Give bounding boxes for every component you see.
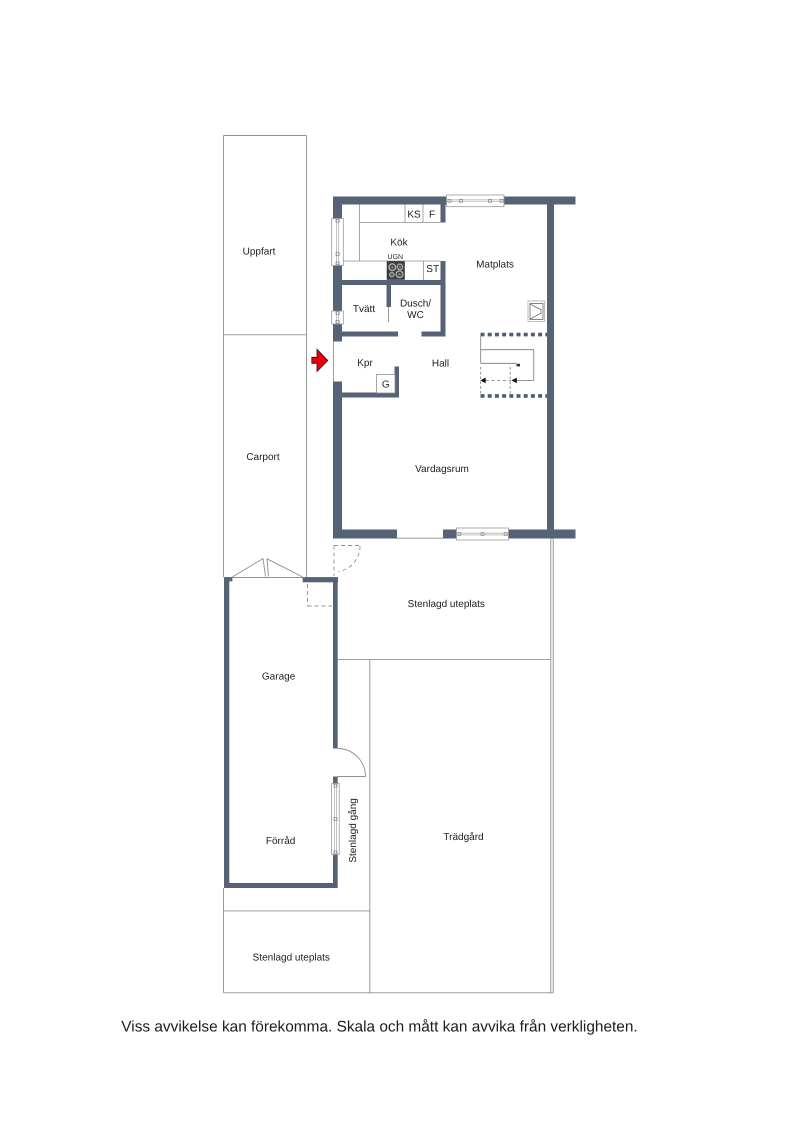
svg-text:Hall: Hall (432, 359, 449, 370)
svg-text:KS: KS (407, 210, 421, 221)
svg-text:Stenlagd gång: Stenlagd gång (347, 798, 359, 863)
svg-text:Uppfart: Uppfart (243, 247, 276, 258)
svg-text:Kök: Kök (390, 238, 408, 249)
svg-text:Förråd: Förråd (266, 835, 295, 847)
svg-text:ST: ST (426, 264, 439, 275)
svg-text:WC: WC (407, 310, 424, 321)
svg-text:Matplats: Matplats (476, 260, 514, 271)
svg-text:F: F (429, 210, 435, 221)
svg-text:Carport: Carport (246, 452, 280, 463)
svg-text:Garage: Garage (262, 672, 296, 683)
svg-text:G: G (382, 380, 390, 391)
svg-text:Kpr: Kpr (357, 358, 373, 369)
svg-text:Stenlagd uteplats: Stenlagd uteplats (253, 953, 330, 964)
svg-text:Trädgård: Trädgård (443, 831, 483, 843)
svg-text:Vardagsrum: Vardagsrum (415, 464, 469, 475)
svg-text:Stenlagd uteplats: Stenlagd uteplats (408, 599, 485, 610)
svg-text:Dusch/: Dusch/ (400, 299, 431, 310)
svg-text:Tvätt: Tvätt (353, 304, 375, 315)
svg-text:UGN: UGN (388, 254, 404, 261)
svg-text:Viss avvikelse kan förekomma.: Viss avvikelse kan förekomma. Skala och … (121, 1019, 637, 1036)
